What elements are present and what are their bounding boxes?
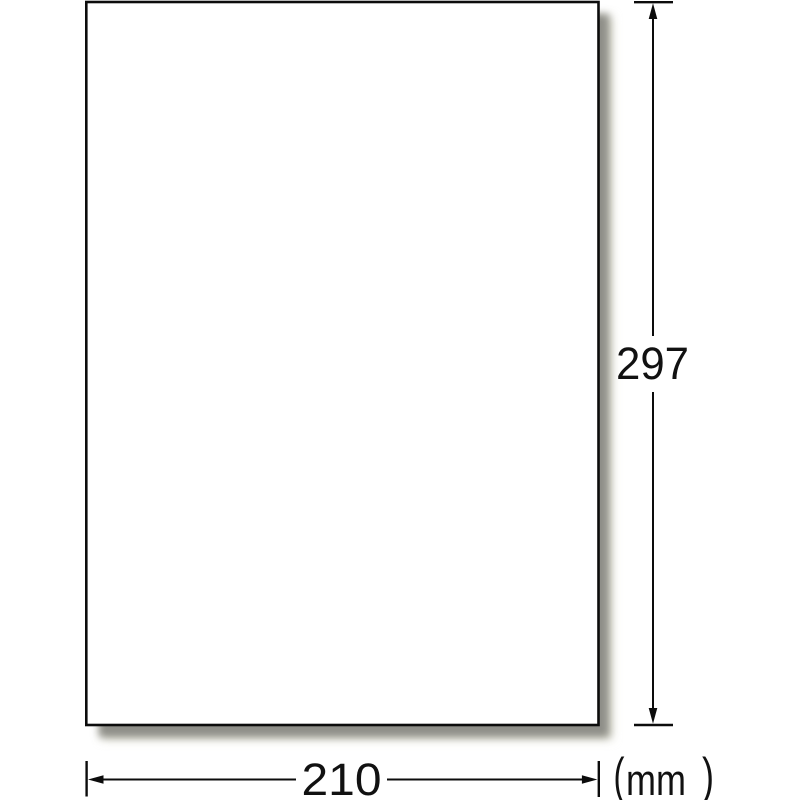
svg-text:210: 210 <box>302 754 382 800</box>
svg-text:297: 297 <box>616 338 689 389</box>
svg-text:mm: mm <box>626 756 686 800</box>
svg-text:(: ( <box>614 748 625 800</box>
svg-text:): ) <box>702 748 714 800</box>
